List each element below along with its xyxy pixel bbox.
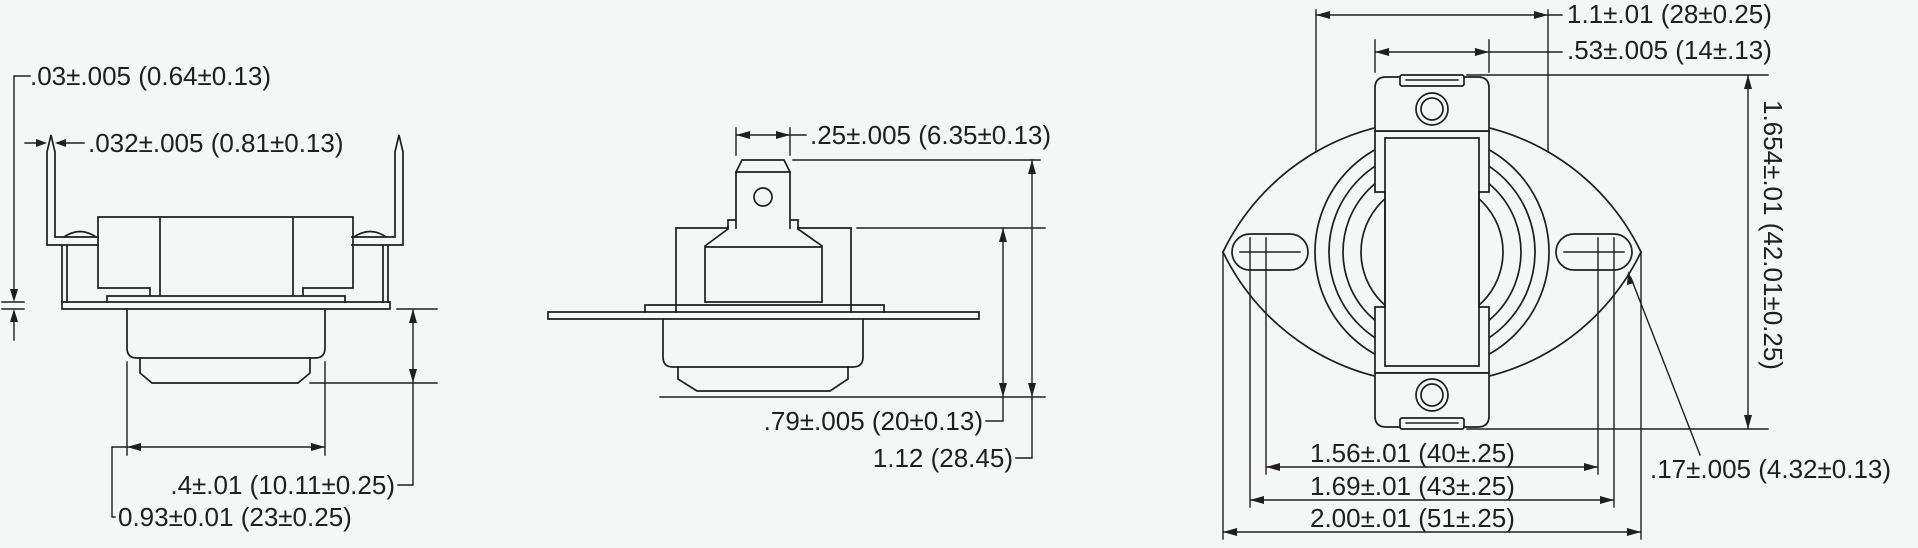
sensing-cap [127, 309, 325, 358]
dim-overall-height: 1.12 (28.45) [873, 443, 1013, 473]
side-view-dimensions: .25±.005 (6.35±0.13) .79±.005 (20±0.13) … [660, 120, 1051, 473]
dim-case-height: .79±.005 (20±0.13) [764, 406, 983, 436]
center-bracket [1375, 131, 1489, 373]
dim-flange-length: 2.00±.01 (51±.25) [1310, 503, 1515, 533]
flange-step [645, 305, 884, 312]
tab-hole [754, 188, 772, 206]
dim-terminal-tab-width: .25±.005 (6.35±0.13) [810, 120, 1051, 150]
mounting-flange [62, 302, 390, 309]
dim-case-diameter: 1.1±.01 (28±0.25) [1567, 0, 1772, 29]
drawing-svg: .03±.005 (0.64±0.13) .032±.005 (0.81±0.1… [0, 0, 1918, 548]
front-view [47, 135, 403, 383]
terminal-tab [728, 160, 798, 228]
top-view [1223, 75, 1641, 429]
switch-body [98, 217, 353, 302]
side-view [548, 160, 979, 391]
terminal-pin-left [47, 135, 98, 302]
dim-overall-width: 1.654±.01 (42.01±0.25) [1758, 100, 1788, 370]
thermostat-dimension-drawing: .03±.005 (0.64±0.13) .032±.005 (0.81±0.1… [0, 0, 1918, 548]
dim-slot-width: .17±.005 (4.32±0.13) [1650, 454, 1891, 484]
top-view-dimensions: 1.1±.01 (28±0.25) .53±.005 (14±.13) 1.65… [1223, 0, 1891, 539]
dim-terminal-pin-thickness: .032±.005 (0.81±0.13) [88, 128, 344, 158]
flange-plate [548, 312, 979, 319]
dim-slot-inner-span: 1.56±.01 (40±.25) [1310, 438, 1515, 468]
sensing-cap-side [663, 319, 863, 367]
cap-disc-side [678, 367, 848, 391]
dim-cap-depth: .4±.01 (10.11±0.25) [170, 470, 395, 500]
case-body [676, 228, 851, 312]
terminal-pin-right [352, 135, 403, 302]
dim-mounting-hole-spacing: 1.69±.01 (43±.25) [1310, 471, 1515, 501]
dim-terminal-block-width: .53±.005 (14±.13) [1567, 35, 1772, 65]
cap-disc [140, 358, 310, 383]
dim-flange-thickness: .03±.005 (0.64±0.13) [30, 61, 271, 91]
dim-cap-diameter: 0.93±0.01 (23±0.25) [118, 502, 352, 532]
